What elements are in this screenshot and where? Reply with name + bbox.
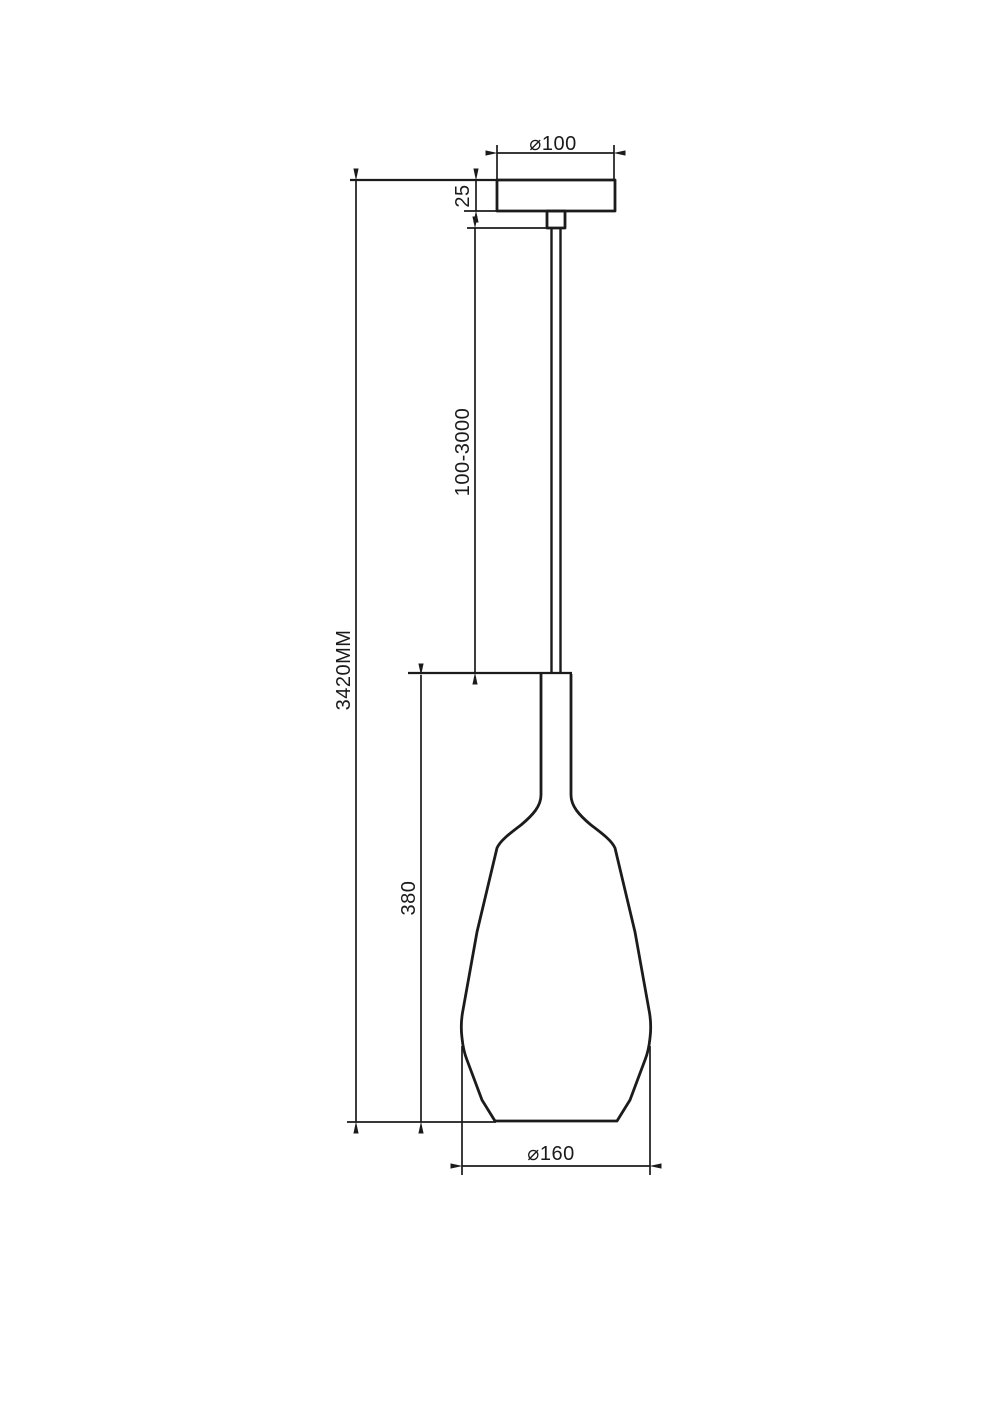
glass-shade bbox=[461, 674, 650, 1121]
canopy-outline bbox=[497, 180, 615, 211]
dimension-overall-height: 3420MM bbox=[333, 180, 356, 1122]
shade-diameter-label: ⌀160 bbox=[527, 1143, 574, 1165]
pendant-lamp-technical-drawing: ⌀100 25 100-3000 3420MM 380 ⌀160 bbox=[0, 0, 992, 1403]
extension-lines bbox=[347, 145, 650, 1175]
suspension-cord bbox=[552, 228, 561, 673]
overall-height-label: 3420MM bbox=[333, 630, 355, 711]
shade-height-label: 380 bbox=[398, 881, 420, 916]
drawing-canvas: ⌀100 25 100-3000 3420MM 380 ⌀160 bbox=[0, 0, 992, 1403]
canopy-height-label: 25 bbox=[452, 184, 474, 207]
suspension-length-label: 100-3000 bbox=[452, 408, 474, 497]
cord-grip-stem bbox=[547, 211, 565, 228]
dimension-canopy-height: 25 bbox=[452, 180, 476, 211]
canopy bbox=[497, 180, 615, 228]
dimension-canopy-diameter: ⌀100 bbox=[497, 133, 614, 155]
glass-shade-outline bbox=[461, 674, 650, 1121]
dimension-shade-height: 380 bbox=[398, 675, 421, 1122]
dimension-shade-diameter: ⌀160 bbox=[462, 1143, 650, 1166]
canopy-diameter-label: ⌀100 bbox=[529, 133, 576, 155]
dimension-suspension-length: 100-3000 bbox=[452, 228, 475, 673]
